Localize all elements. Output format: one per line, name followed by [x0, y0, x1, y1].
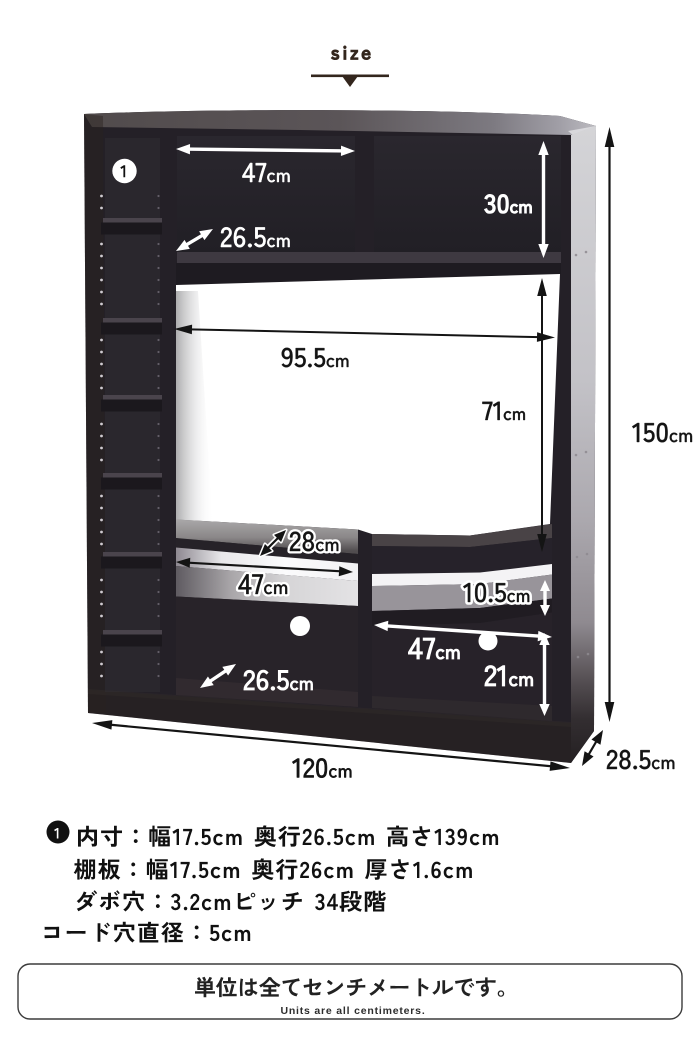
svg-text:Units are all centimeters.: Units are all centimeters.: [280, 1005, 425, 1017]
